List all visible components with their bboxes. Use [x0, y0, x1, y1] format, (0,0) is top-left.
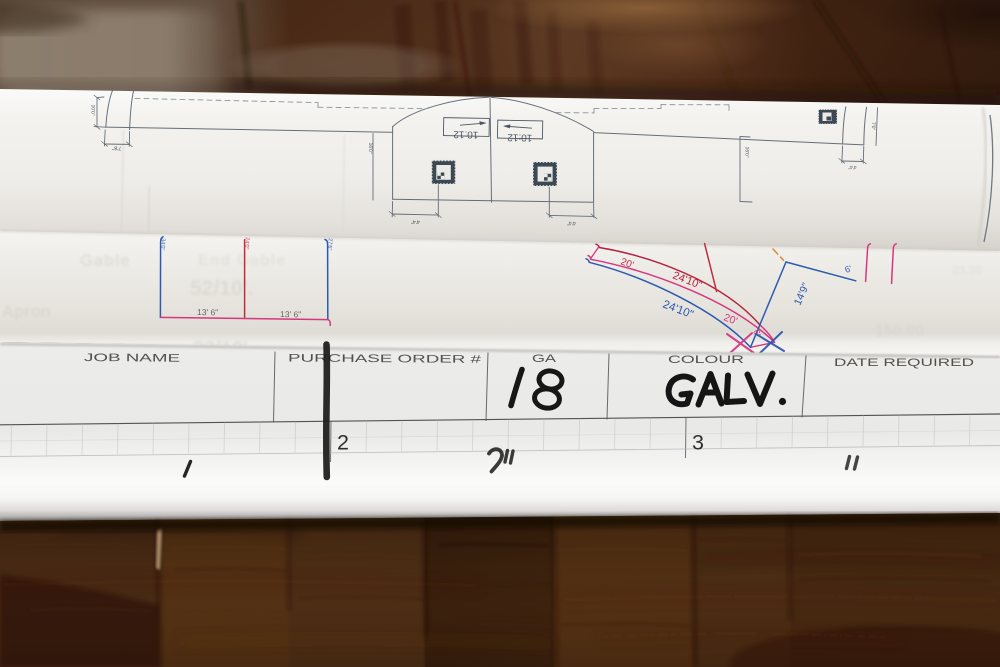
svg-text:End Gable: End Gable: [198, 252, 286, 269]
svg-text:Apron: Apron: [2, 303, 51, 321]
svg-text:4'4": 4'4": [411, 218, 420, 224]
svg-text:16'0": 16'0": [743, 146, 749, 157]
svg-text:13' 6": 13' 6": [197, 307, 218, 317]
svg-text:7'8": 7'8": [112, 144, 121, 150]
svg-text:4'4": 4'4": [567, 220, 576, 226]
svg-text:10:12: 10:12: [453, 128, 479, 140]
svg-text:7'0": 7'0": [870, 122, 876, 131]
svg-text:27'6": 27'6": [326, 238, 333, 251]
svg-text:3: 3: [692, 431, 704, 455]
svg-text:34'0": 34'0": [159, 238, 166, 251]
svg-text:16'0": 16'0": [367, 142, 373, 153]
svg-text:Gable: Gable: [80, 252, 131, 270]
svg-text:JOB NAME: JOB NAME: [84, 352, 180, 365]
svg-text:2: 2: [337, 431, 349, 455]
svg-text:10'0": 10'0": [89, 104, 95, 115]
svg-text:DATE REQUIRED: DATE REQUIRED: [834, 357, 974, 369]
svg-text:23.00: 23.00: [952, 263, 982, 277]
svg-text:150.00: 150.00: [875, 323, 924, 340]
svg-text:10:12: 10:12: [507, 131, 533, 143]
svg-text:GA: GA: [532, 353, 557, 365]
svg-text:PURCHASE ORDER #: PURCHASE ORDER #: [288, 353, 483, 366]
svg-text:COLOUR: COLOUR: [668, 354, 744, 366]
svg-text:4'4": 4'4": [848, 164, 857, 170]
svg-text:13' 6": 13' 6": [280, 309, 301, 319]
svg-text:24'0": 24'0": [243, 237, 250, 250]
